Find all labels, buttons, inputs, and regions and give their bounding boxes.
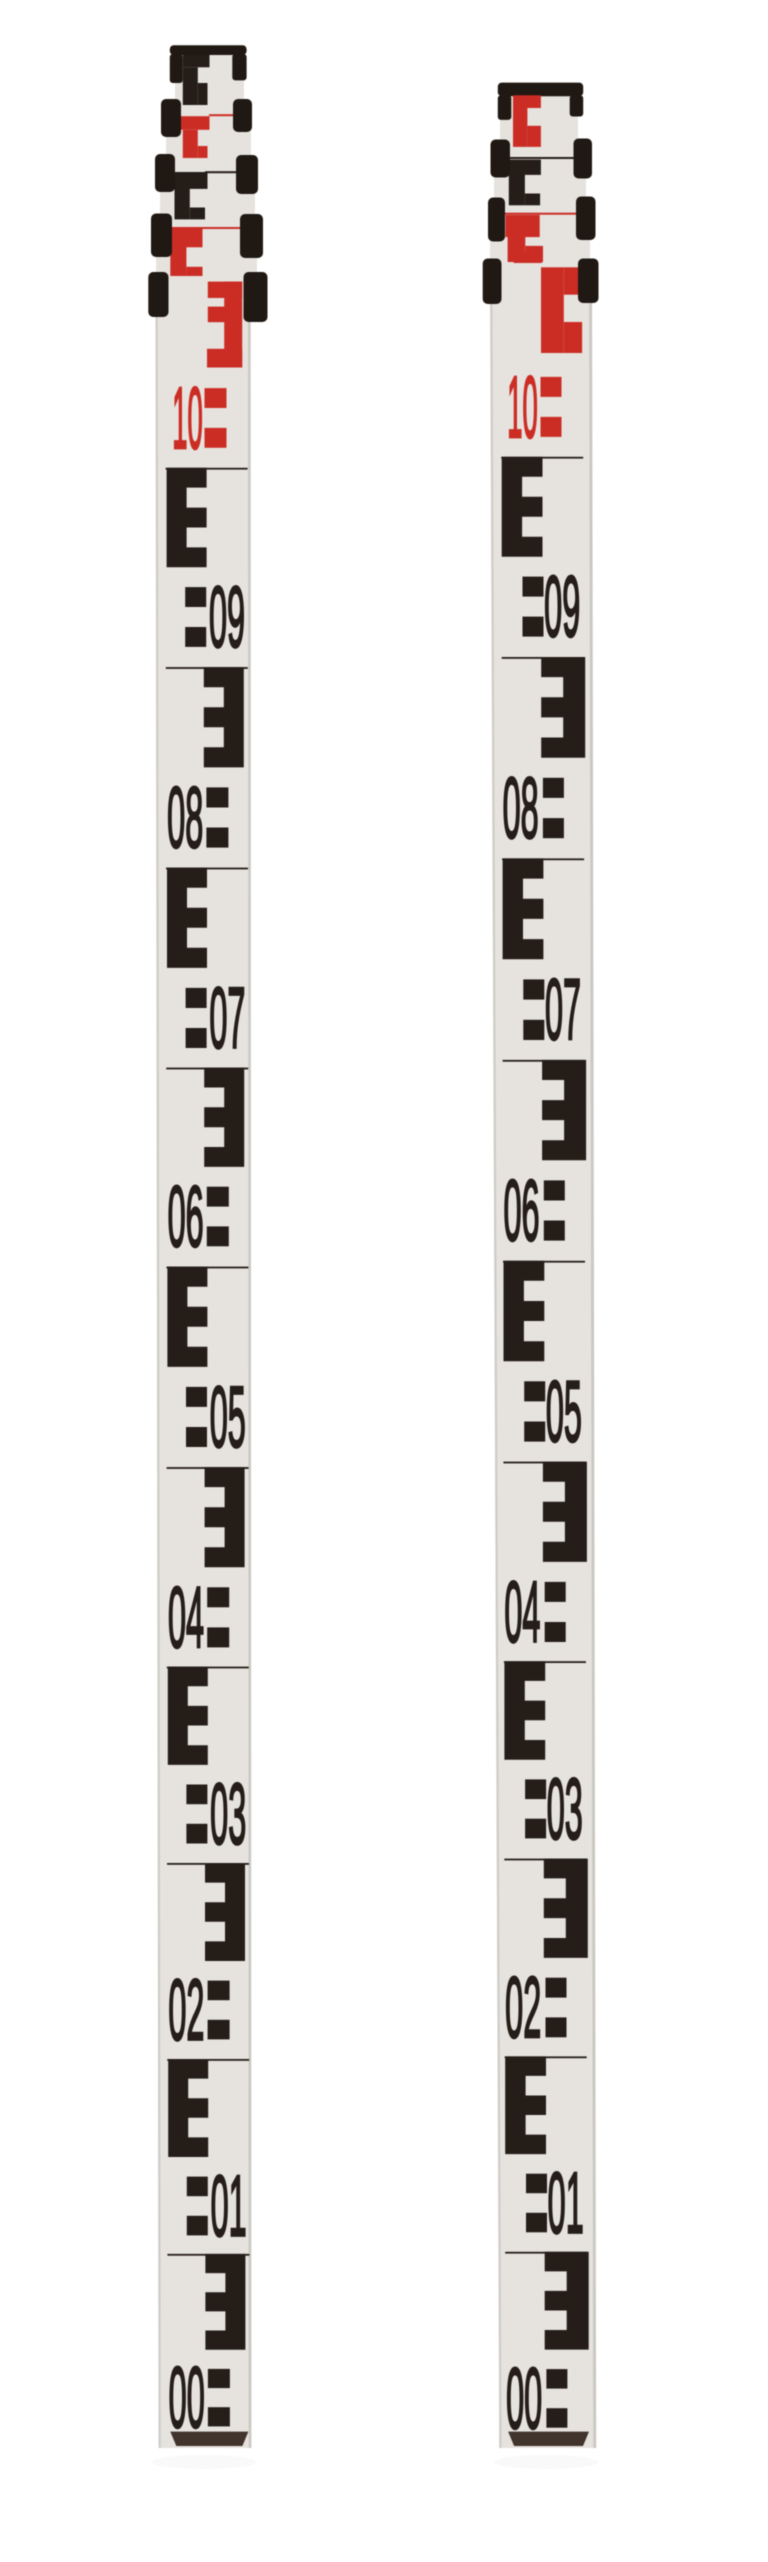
svg-text:05: 05 — [546, 1363, 582, 1460]
svg-text:04: 04 — [504, 1563, 540, 1660]
svg-text:04: 04 — [168, 1569, 204, 1666]
svg-text:09: 09 — [209, 568, 245, 665]
svg-text:10: 10 — [507, 359, 537, 456]
svg-text:02: 02 — [505, 1959, 541, 2056]
svg-text:07: 07 — [209, 969, 245, 1066]
svg-text:10: 10 — [172, 370, 202, 467]
svg-text:06: 06 — [168, 1168, 204, 1265]
svg-text:09: 09 — [544, 558, 580, 655]
svg-text:08: 08 — [503, 759, 539, 856]
svg-text:00: 00 — [169, 2349, 205, 2446]
svg-text:03: 03 — [210, 1765, 246, 1862]
svg-text:06: 06 — [503, 1162, 539, 1259]
svg-text:02: 02 — [168, 1961, 204, 2058]
svg-text:05: 05 — [210, 1368, 246, 1465]
svg-text:07: 07 — [545, 961, 581, 1058]
svg-text:03: 03 — [547, 1760, 583, 1857]
svg-text:01: 01 — [211, 2157, 247, 2254]
svg-text:08: 08 — [167, 769, 203, 866]
svg-text:01: 01 — [548, 2154, 584, 2251]
